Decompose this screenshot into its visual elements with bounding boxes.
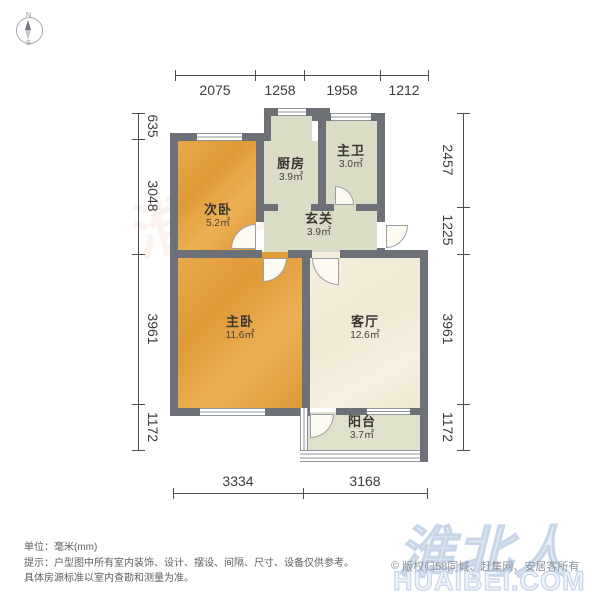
wall-segment — [288, 250, 312, 258]
dimension-line-top — [175, 75, 428, 76]
dim-tick — [457, 113, 470, 114]
floor-plan-page: N S 淮北人 次卧 5.2㎡ — [0, 0, 600, 600]
dimension-line-right — [463, 113, 464, 450]
dimension-line-bottom — [173, 493, 428, 494]
copyright-text: 版权归58同城、赶集网、安居客所有 — [402, 558, 579, 574]
room-area: 3.7㎡ — [350, 430, 374, 442]
room-area: 3.9㎡ — [279, 172, 303, 184]
dim-tick — [457, 207, 470, 208]
dim-tick — [457, 254, 470, 255]
dimension-line-left — [138, 113, 139, 450]
wall-segment — [311, 204, 334, 211]
room-label-master-bedroom: 主卧 11.6㎡ — [203, 315, 277, 341]
room-area: 11.6㎡ — [226, 330, 255, 342]
dim-tick — [132, 254, 145, 255]
dim-label-bottom: 3334 — [222, 473, 253, 489]
footer-unit-line: 单位：毫米(mm) — [24, 540, 354, 556]
wall-segment — [410, 408, 420, 415]
watermark-copyright-line: © 版权归58同城、赶集网、安居客所有 — [391, 558, 579, 574]
window — [200, 408, 265, 416]
compass-needle-north — [25, 20, 31, 30]
dim-tick — [457, 450, 470, 451]
compass-icon: N S — [13, 13, 57, 57]
wall-segment — [420, 250, 428, 462]
room-label-balcony: 阳台 3.7㎡ — [330, 415, 394, 441]
dim-label-right: 1172 — [440, 412, 456, 442]
footer-tip-line2: 具体房源标准以室内查勘和测量为准。 — [24, 571, 354, 587]
dim-tick — [428, 70, 429, 81]
wall-segment — [356, 204, 377, 211]
wall-segment — [170, 133, 178, 416]
footer-notes: 单位：毫米(mm) 提示：户型图中所有室内装饰、设计、摆设、间隔、尺寸、设备仅供… — [24, 540, 354, 587]
room-name: 厨房 — [277, 157, 305, 172]
room-area: 3.0㎡ — [339, 159, 363, 171]
dim-tick — [175, 70, 176, 81]
dim-label-top: 1212 — [388, 82, 419, 98]
dim-tick — [132, 404, 145, 405]
room-label-living-room: 客厅 12.6㎡ — [328, 315, 402, 341]
room-name: 次卧 — [204, 203, 232, 218]
window — [278, 108, 306, 116]
dim-tick — [457, 404, 470, 405]
dim-label-top: 1258 — [264, 82, 295, 98]
balcony-glazing-window — [300, 450, 420, 462]
dim-label-left: 1172 — [145, 412, 161, 442]
dim-label-right: 2457 — [440, 144, 456, 175]
footer-tip-line1: 提示：户型图中所有室内装饰、设计、摆设、间隔、尺寸、设备仅供参考。 — [24, 556, 354, 572]
dim-tick — [303, 488, 304, 499]
window — [331, 113, 371, 121]
dim-tick — [173, 488, 174, 499]
room-label-entry-hall: 玄关 3.9㎡ — [287, 212, 351, 238]
dim-label-bottom: 3168 — [349, 473, 380, 489]
window — [300, 408, 308, 454]
dim-label-top: 1958 — [326, 82, 357, 98]
compass-needle-south — [25, 30, 31, 40]
room-name: 玄关 — [305, 212, 333, 227]
wall-segment — [170, 250, 262, 258]
compass-south-label: S — [13, 40, 44, 47]
dim-tick — [255, 70, 256, 81]
dim-tick — [132, 113, 145, 114]
room-label-master-bath: 主卫 3.0㎡ — [319, 144, 383, 170]
dim-label-right: 1225 — [440, 214, 456, 245]
door-swing-entry — [386, 225, 408, 248]
copyright-icon: © — [391, 560, 399, 572]
dim-tick — [427, 488, 428, 499]
dim-label-left: 3961 — [145, 313, 161, 344]
wall-segment — [302, 258, 310, 408]
room-name: 客厅 — [351, 315, 379, 330]
window — [197, 133, 242, 141]
dim-tick — [132, 139, 145, 140]
dim-tick — [380, 70, 381, 81]
wall-segment — [264, 108, 271, 141]
room-area: 5.2㎡ — [206, 218, 230, 230]
room-name: 主卧 — [226, 315, 254, 330]
dim-tick — [304, 70, 305, 81]
dim-label-top: 2075 — [199, 82, 230, 98]
room-name: 主卫 — [337, 144, 365, 159]
dim-tick — [132, 450, 145, 451]
room-name: 阳台 — [348, 415, 376, 430]
dim-label-left: 3048 — [145, 180, 161, 211]
room-area: 3.9㎡ — [307, 227, 331, 239]
room-label-kitchen: 厨房 3.9㎡ — [259, 157, 323, 183]
wall-segment — [340, 250, 428, 258]
wall-segment — [264, 204, 278, 211]
dim-label-right: 3961 — [440, 313, 456, 344]
dim-label-left: 635 — [145, 114, 161, 137]
room-area: 12.6㎡ — [350, 330, 379, 342]
room-label-second-bedroom: 次卧 5.2㎡ — [180, 203, 256, 229]
